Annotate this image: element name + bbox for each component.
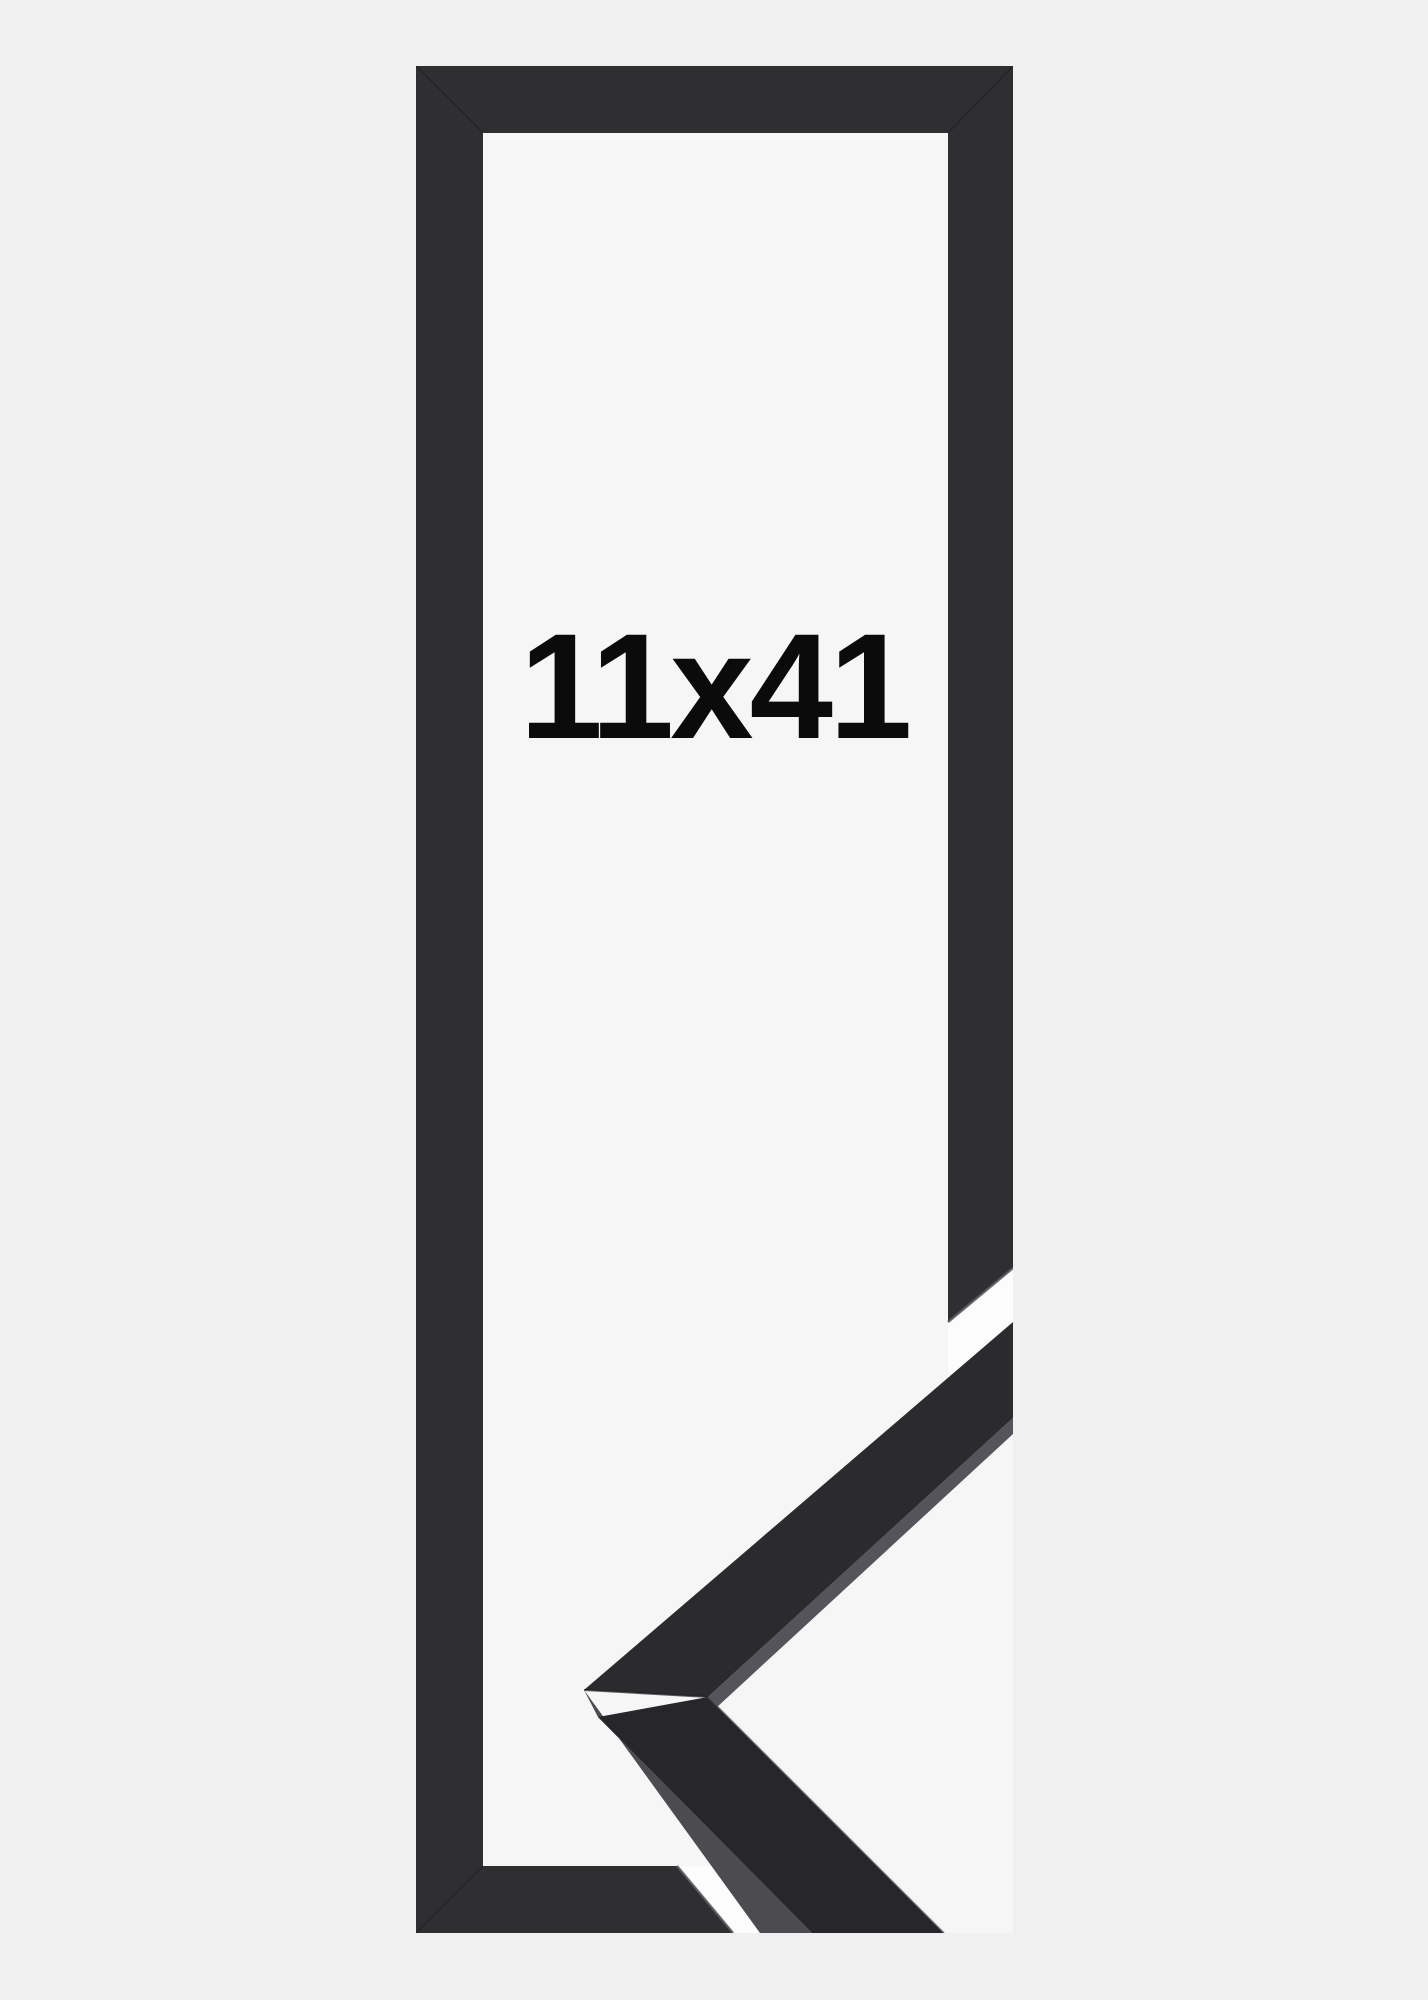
frame-product-photo: 11x41 xyxy=(416,66,1013,1933)
size-label: 11x41 xyxy=(520,602,909,770)
page-background: 11x41 xyxy=(0,0,1428,2000)
frame-illustration: 11x41 xyxy=(416,66,1013,1933)
